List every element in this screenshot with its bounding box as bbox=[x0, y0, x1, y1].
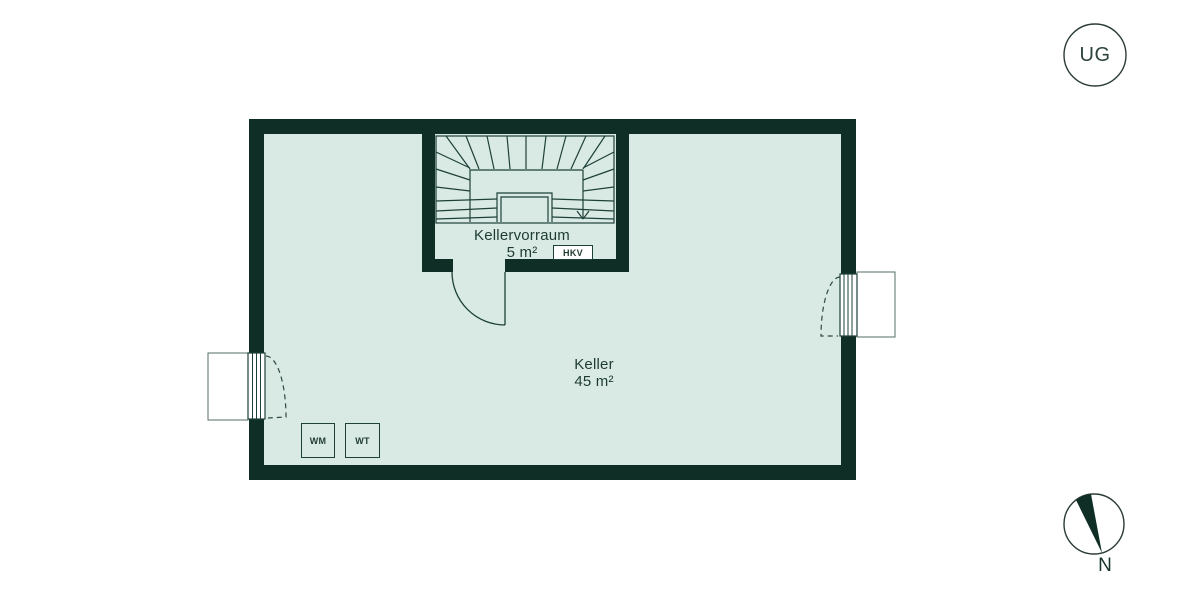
wall-top bbox=[249, 119, 856, 134]
enclosure-wall-right bbox=[616, 134, 629, 272]
dryer-box: WT bbox=[345, 423, 380, 458]
room-label-keller: Keller 45 m² bbox=[514, 356, 674, 390]
wall-bottom bbox=[249, 465, 856, 480]
light-shaft-right bbox=[857, 272, 895, 337]
floorplan-drawing bbox=[0, 0, 1200, 600]
hkv-label: HKV bbox=[563, 248, 583, 258]
wall-left bbox=[249, 119, 264, 480]
room-name: Kellervorraum bbox=[427, 227, 617, 244]
floor-area bbox=[249, 119, 856, 480]
floorplan-canvas: UG Kellervorraum 5 m² HKV Keller 45 m² W… bbox=[0, 0, 1200, 600]
washing-machine-box: WM bbox=[301, 423, 335, 458]
room-area: 45 m² bbox=[514, 373, 674, 390]
light-shaft-left bbox=[208, 353, 248, 420]
compass bbox=[1064, 494, 1124, 554]
floor-badge: UG bbox=[1064, 24, 1126, 86]
hkv-box: HKV bbox=[553, 245, 593, 260]
wt-label: WT bbox=[355, 436, 370, 446]
compass-north-label: N bbox=[1089, 555, 1121, 577]
room-name: Keller bbox=[514, 356, 674, 373]
floor-badge-label: UG bbox=[1080, 44, 1111, 67]
wm-label: WM bbox=[310, 436, 327, 446]
